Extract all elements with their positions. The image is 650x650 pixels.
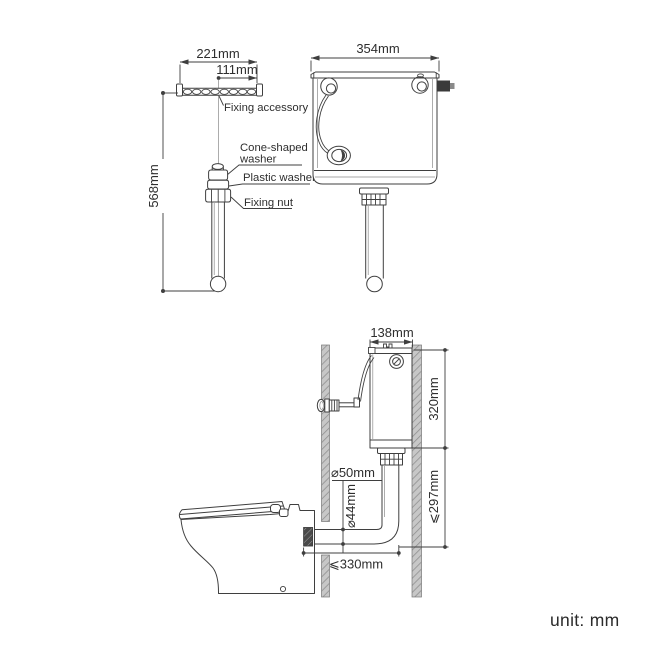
dim-44: ⌀44mm xyxy=(341,481,358,554)
fixing-accessory-label: Fixing accessory xyxy=(224,102,308,114)
part-labels: Cone-shaped washer Plastic washer Fixing… xyxy=(228,142,316,209)
unit-note: unit: mm xyxy=(550,610,620,630)
cone-shaped-washer xyxy=(209,170,228,180)
dim-320-label: 320mm xyxy=(426,377,441,420)
pan-body xyxy=(181,505,315,594)
installation-side-view: 138mm 320mm ⩽297mm ⌀50mm ⌀44mm xyxy=(179,325,448,597)
flush-pipe-assembly xyxy=(206,164,231,292)
dim-297-label: ⩽297mm xyxy=(426,470,441,524)
rear-wall xyxy=(412,345,422,597)
product-dimension-sheet: 221mm 111mm 568mm Fixing accessory xyxy=(0,0,650,650)
dim-138-label: 138mm xyxy=(370,325,413,340)
dim-50: ⌀50mm xyxy=(331,465,382,481)
fixing-bar xyxy=(177,84,263,96)
concealed-cistern xyxy=(369,344,413,465)
dim-354: 354mm xyxy=(311,41,439,72)
fixing-accessory-diagram: 221mm 111mm 568mm Fixing accessory xyxy=(146,46,316,293)
wall-clip xyxy=(384,344,393,348)
pan-inlet-connector xyxy=(304,528,313,547)
dim-111: 111mm xyxy=(216,62,257,80)
plastic-washer xyxy=(208,180,229,189)
pipe-end-opening xyxy=(367,276,383,292)
side-connector xyxy=(437,81,455,92)
cone-washer-label-2: washer xyxy=(239,154,277,166)
dim-111-label: 111mm xyxy=(216,62,257,77)
flush-pipe-tube xyxy=(210,202,225,292)
dim-44-label: ⌀44mm xyxy=(343,484,358,528)
cistern-front-view: 354mm xyxy=(311,41,455,292)
cistern-outlet xyxy=(378,448,406,465)
toilet-side-view xyxy=(179,502,314,594)
fixing-accessory-leader xyxy=(219,96,224,106)
plastic-washer-leader xyxy=(229,184,310,186)
plastic-washer-label: Plastic washer xyxy=(243,172,316,184)
cone-washer-label-1: Cone-shaped xyxy=(240,142,308,154)
dim-297: ⩽297mm xyxy=(399,448,449,549)
cistern-flush-pipe xyxy=(366,205,384,292)
technical-drawing: 221mm 111mm 568mm Fixing accessory xyxy=(0,0,650,650)
cable-entry xyxy=(369,348,376,354)
dim-330-label: ⩽330mm xyxy=(329,557,383,572)
dim-568-label: 568mm xyxy=(146,164,161,207)
inlet-fitting xyxy=(390,355,404,369)
outlet-fitting xyxy=(360,188,389,205)
dim-50-label: ⌀50mm xyxy=(331,465,375,480)
pipe-end-opening xyxy=(210,276,225,291)
dim-221-label: 221mm xyxy=(196,46,239,61)
dim-330: ⩽330mm xyxy=(302,545,401,572)
dim-354-label: 354mm xyxy=(356,41,399,56)
fixing-nut-label: Fixing nut xyxy=(244,197,294,209)
flush-valve-opening xyxy=(327,146,350,164)
cistern-body xyxy=(313,78,437,184)
pipe-top-opening xyxy=(212,164,223,170)
